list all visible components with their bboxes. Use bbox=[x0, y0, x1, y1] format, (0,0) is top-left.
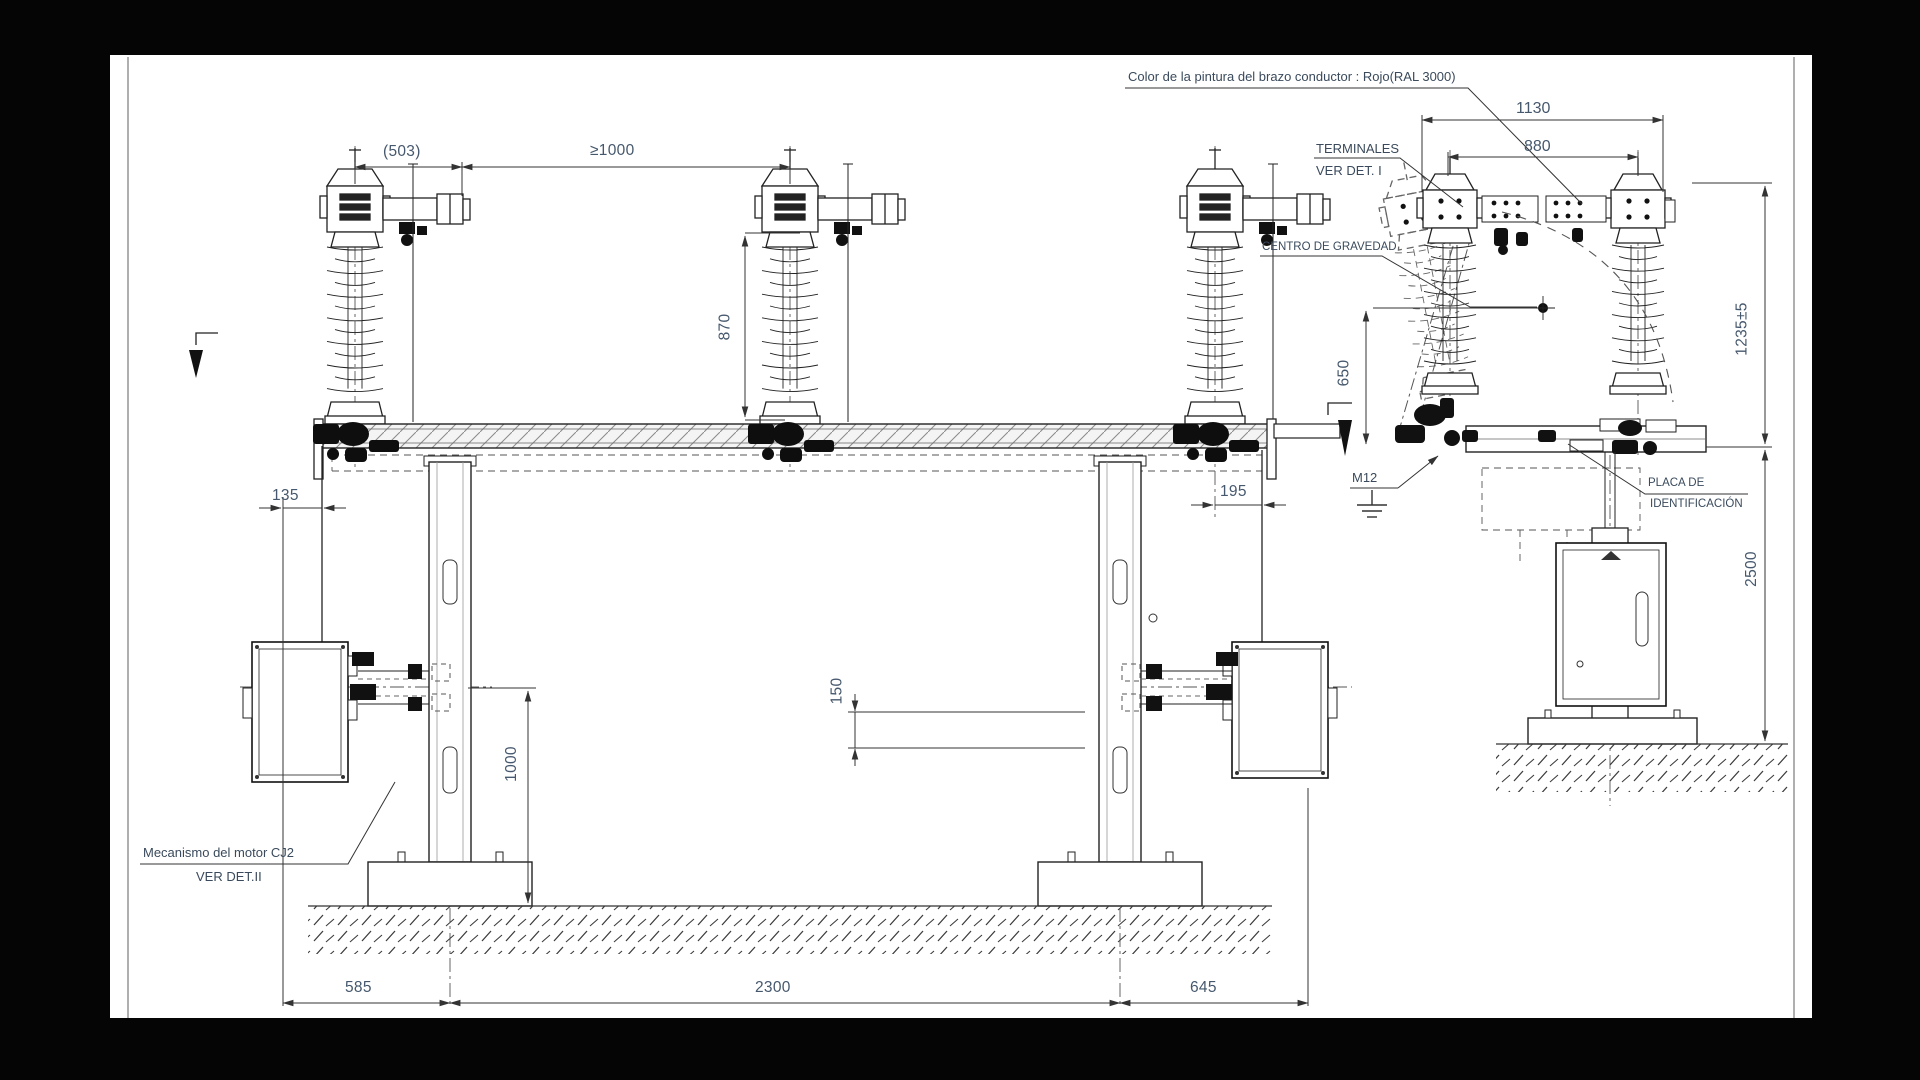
m12-label: M12 bbox=[1352, 470, 1377, 485]
centro-gravedad-label: CENTRO DE GRAVEDAD bbox=[1262, 241, 1397, 253]
dim-1000: 1000 bbox=[503, 746, 521, 782]
dim-870: 870 bbox=[716, 314, 734, 341]
color-note-label: Color de la pintura del brazo conductor … bbox=[1128, 69, 1456, 84]
dim-2300: 2300 bbox=[755, 979, 791, 997]
mecanismo-label-line2: VER DET.II bbox=[196, 869, 262, 884]
ground-side bbox=[1496, 744, 1788, 792]
dim-1235: 1235±5 bbox=[1734, 302, 1752, 355]
dim-503: (503) bbox=[383, 143, 421, 161]
dim-650: 650 bbox=[1335, 360, 1353, 387]
dim-1130: 1130 bbox=[1516, 100, 1550, 118]
terminales-detail-label: VER DET. I bbox=[1316, 163, 1382, 178]
placa-label-line1: PLACA DE bbox=[1648, 477, 1704, 489]
dim-645: 645 bbox=[1190, 979, 1217, 997]
dim-195: 195 bbox=[1220, 483, 1247, 501]
dim-150: 150 bbox=[828, 678, 846, 705]
ground-front bbox=[308, 906, 1272, 954]
identification-plate bbox=[1570, 440, 1603, 451]
dim-2500: 2500 bbox=[1743, 551, 1761, 587]
dim-880: 880 bbox=[1524, 138, 1551, 156]
terminales-label: TERMINALES bbox=[1316, 141, 1399, 156]
dim-135: 135 bbox=[272, 487, 299, 505]
motor-box-side bbox=[1556, 543, 1666, 706]
dim-ge1000: ≥1000 bbox=[590, 142, 635, 160]
technical-drawing-canvas bbox=[0, 0, 1920, 1080]
placa-label-line2: IDENTIFICACIÓN bbox=[1650, 498, 1743, 510]
drawing-page: Color de la pintura del brazo conductor … bbox=[0, 0, 1920, 1080]
mecanismo-label-line1: Mecanismo del motor CJ2 bbox=[143, 845, 294, 860]
dim-585: 585 bbox=[345, 979, 372, 997]
